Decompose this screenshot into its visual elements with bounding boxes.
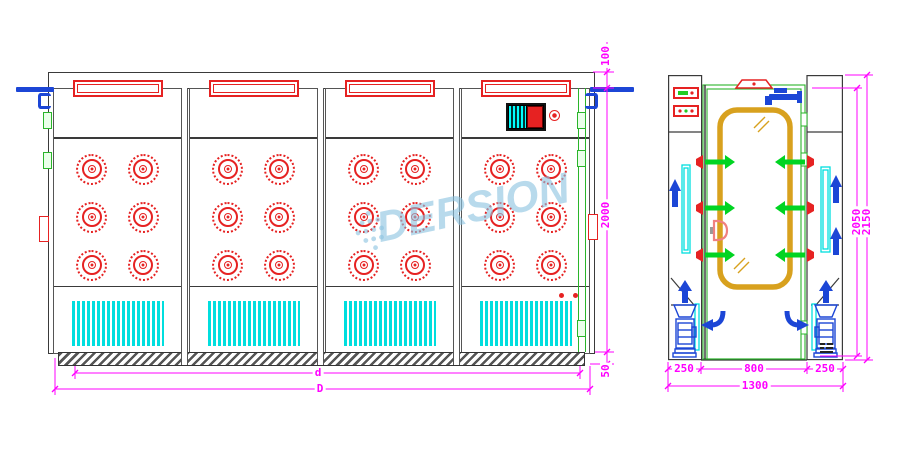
blower-panel-2 [189, 88, 318, 354]
air-nozzle [128, 202, 159, 233]
air-nozzle [400, 250, 431, 281]
air-nozzle [348, 250, 379, 281]
panel-divider [54, 137, 181, 139]
hinge-icon [577, 112, 586, 129]
air-nozzle [128, 154, 159, 185]
air-nozzle [212, 250, 243, 281]
air-nozzle [536, 250, 567, 281]
door-handle-left [39, 216, 49, 242]
door-closer-icon [765, 88, 802, 105]
indicator-dot [559, 293, 564, 298]
blower-panel-4 [461, 88, 590, 354]
panel-separator [181, 88, 188, 365]
nozzle-grid [54, 141, 181, 293]
air-nozzle [348, 202, 379, 233]
air-nozzle [536, 202, 567, 233]
door-closer-body-left [38, 93, 51, 109]
side-view-drawing [668, 75, 843, 361]
air-nozzle [484, 202, 515, 233]
air-nozzle [264, 202, 295, 233]
panel-divider [326, 286, 453, 287]
air-nozzle [484, 154, 515, 185]
panel-separator [317, 88, 324, 365]
recirculation-arrow [701, 311, 809, 331]
blower-left [673, 305, 696, 357]
hinge-icon [43, 112, 52, 129]
dim-label-chamber-width: 800 [742, 363, 766, 375]
dim-label-base-height: 50 [600, 362, 612, 379]
blower-panel-3 [325, 88, 454, 354]
light-fixture-inner [213, 84, 295, 93]
door-closer-body-right [585, 93, 598, 109]
hinge-icon [577, 150, 586, 167]
panel-divider [190, 137, 317, 139]
dim-label-outer-width: D [315, 383, 326, 395]
indicator-dot [573, 293, 578, 298]
air-nozzle [400, 202, 431, 233]
light-fixture [73, 80, 163, 97]
panel-divider [326, 137, 453, 139]
air-shower-drawing: 100 2000 50 d D 250 800 250 1300 2050 21… [0, 0, 900, 460]
light-fixture [481, 80, 571, 97]
air-nozzle [212, 154, 243, 185]
air-nozzle [536, 154, 567, 185]
interlock-lamp [736, 80, 772, 88]
door-window [720, 110, 790, 287]
front-elevation-view [48, 72, 593, 365]
controller-screen [509, 106, 526, 128]
hinge-icon [43, 152, 52, 169]
air-nozzle [76, 250, 107, 281]
return-air-grille [72, 301, 164, 346]
power-button [549, 110, 560, 121]
door-handle-right [588, 214, 598, 240]
dim-label-body-height: 2000 [600, 200, 612, 231]
air-nozzle [128, 250, 159, 281]
air-nozzle [264, 154, 295, 185]
side-section-view [668, 75, 843, 361]
panel-divider [54, 286, 181, 287]
panel-divider [462, 137, 589, 139]
dim-label-total-height: 2150 [861, 207, 873, 238]
air-nozzle [76, 202, 107, 233]
nozzle-grid [326, 141, 453, 293]
return-air-grille [344, 301, 436, 346]
return-air-grille [208, 301, 300, 346]
dim-label-top-height: 100 [600, 44, 612, 68]
light-fixture-inner [349, 84, 431, 93]
dim-label-right-section: 250 [813, 363, 837, 375]
air-nozzle [400, 154, 431, 185]
blower-panel-1 [53, 88, 182, 354]
light-fixture-inner [77, 84, 159, 93]
blower-right [814, 305, 837, 357]
air-nozzle [348, 154, 379, 185]
dim-label-left-section: 250 [672, 363, 696, 375]
nozzle-grid [462, 141, 589, 293]
controller-keypad [527, 106, 543, 128]
return-air-grille [480, 301, 572, 346]
air-nozzle [484, 250, 515, 281]
panel-separator [453, 88, 460, 365]
door-hinges [801, 113, 807, 334]
panel-divider [190, 286, 317, 287]
dim-label-total-width: 1300 [740, 380, 771, 392]
air-nozzle [76, 154, 107, 185]
interlock-indicators [674, 88, 698, 116]
light-fixture [209, 80, 299, 97]
light-fixture [345, 80, 435, 97]
air-nozzle [264, 250, 295, 281]
panel-divider [462, 286, 589, 287]
hinge-icon [577, 320, 586, 337]
dim-label-inner-width: d [313, 367, 324, 379]
door-closer-arm-left [16, 87, 54, 92]
nozzle-grid [190, 141, 317, 293]
door-closer-arm-right [590, 87, 634, 92]
controller-display [506, 103, 546, 131]
light-fixture-inner [485, 84, 567, 93]
air-nozzle [212, 202, 243, 233]
